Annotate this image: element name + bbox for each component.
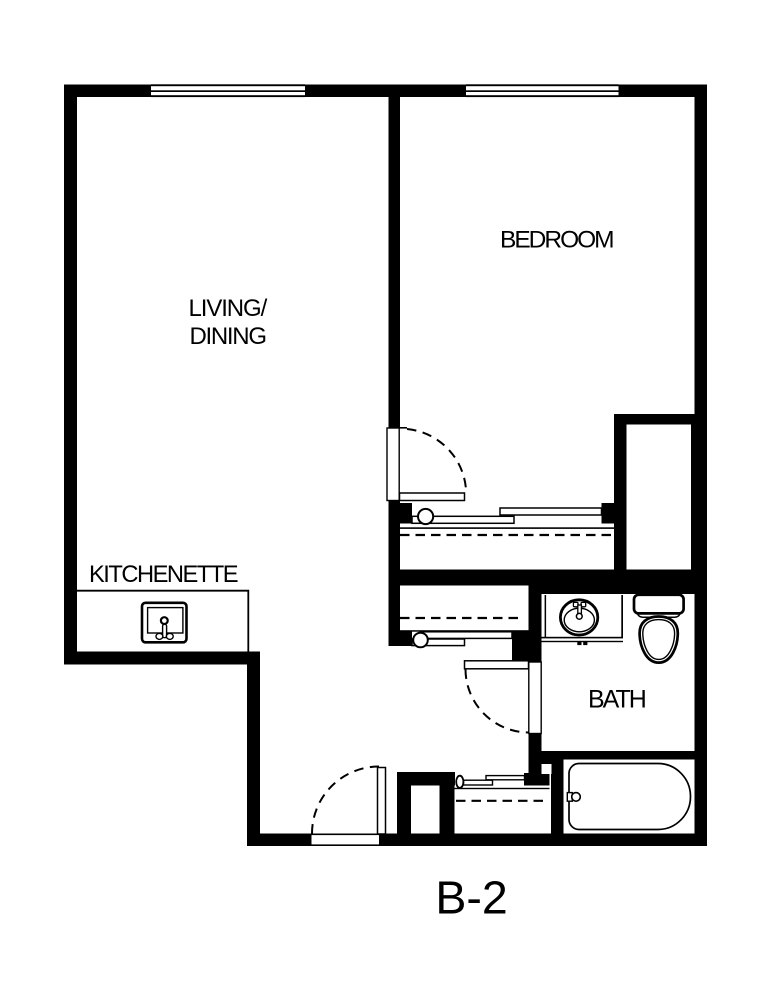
svg-text:BATH: BATH	[588, 686, 646, 714]
svg-text:B-2: B-2	[435, 872, 507, 924]
svg-text:KITCHENETTE: KITCHENETTE	[89, 562, 238, 588]
svg-text:LIVING/: LIVING/	[189, 295, 268, 322]
svg-text:DINING: DINING	[190, 323, 266, 350]
svg-text:BEDROOM: BEDROOM	[500, 227, 613, 254]
